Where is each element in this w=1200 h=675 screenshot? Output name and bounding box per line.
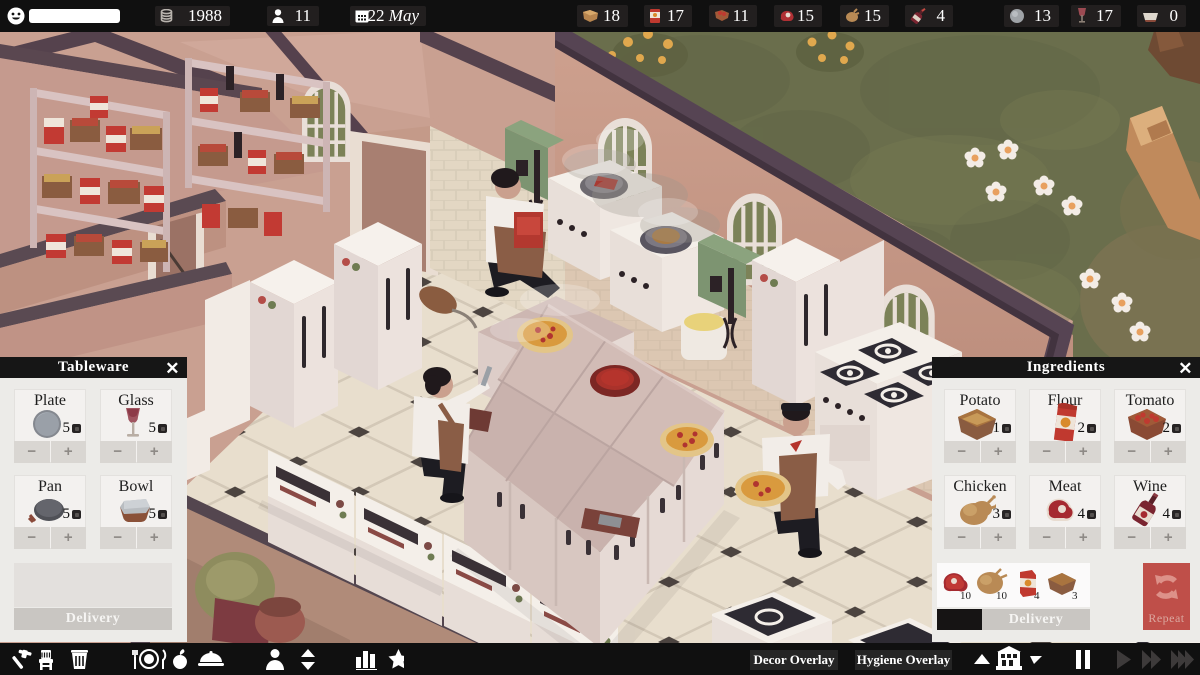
svg-text:10: 10: [960, 590, 972, 602]
svg-text:3: 3: [1072, 590, 1078, 602]
svg-text:4: 4: [1034, 590, 1040, 602]
svg-text:10: 10: [996, 590, 1008, 602]
